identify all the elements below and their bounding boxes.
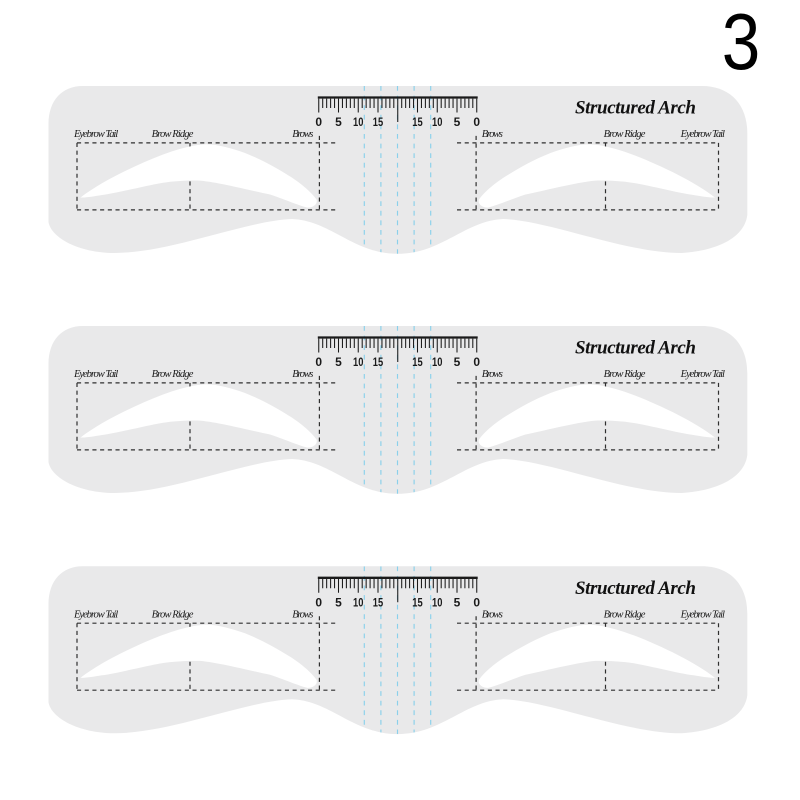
svg-text:3: 3	[722, 0, 761, 86]
